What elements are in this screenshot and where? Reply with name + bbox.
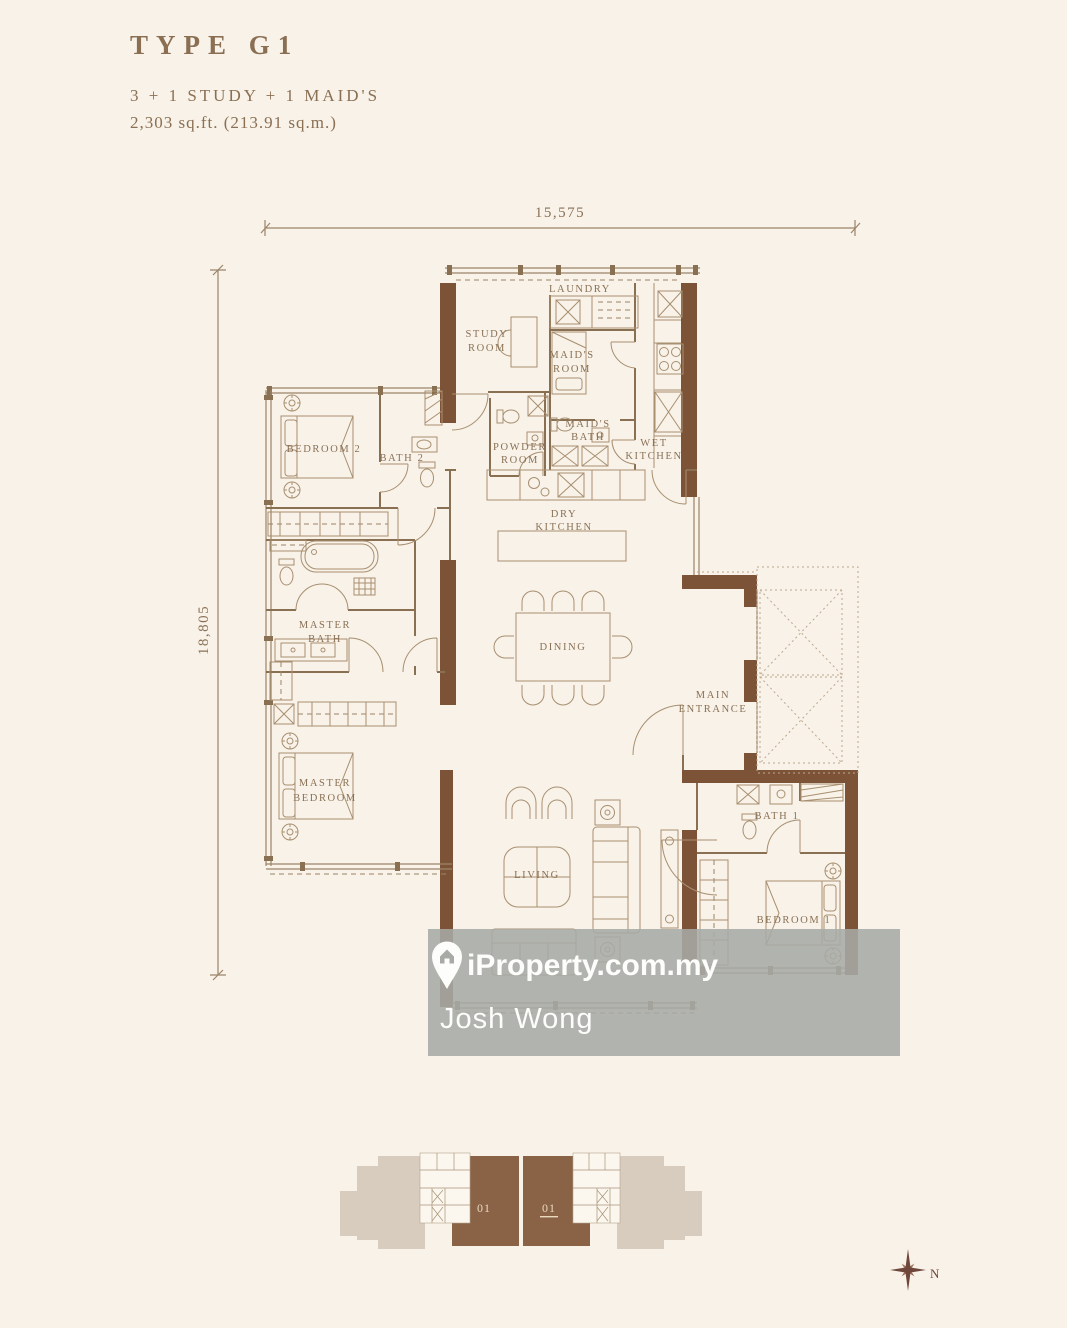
- laundry-counter: [550, 296, 638, 328]
- key-plan-left-unit-label: 01: [477, 1201, 491, 1215]
- watermark-agent: Josh Wong: [440, 1003, 594, 1035]
- tv-console: [661, 830, 678, 928]
- key-plan: 01 01: [340, 1153, 702, 1249]
- sofa-right: [593, 827, 640, 933]
- dimension-top-value: 15,575: [535, 205, 585, 221]
- label-study-2: ROOM: [468, 343, 506, 354]
- label-main-entrance-2: ENTRANCE: [679, 704, 748, 715]
- label-bath1: BATH 1: [755, 811, 800, 822]
- label-study-1: STUDY: [465, 329, 508, 340]
- wardrobe-upper: [268, 512, 388, 536]
- label-dry-kitchen-1: DRY: [551, 509, 577, 520]
- key-plan-left-wing: [340, 1156, 425, 1249]
- label-bedroom1: BEDROOM 1: [757, 915, 832, 926]
- key-plan-right-unit-label: 01: [542, 1201, 556, 1215]
- label-powder-2: ROOM: [501, 455, 539, 466]
- bed-maid: [552, 332, 586, 394]
- floor-plan-page: TYPE G1 3 + 1 STUDY + 1 MAID'S 2,303 sq.…: [0, 0, 1067, 1328]
- key-plan-right-mini: [573, 1153, 620, 1223]
- wet-kitchen-sink: [658, 291, 682, 317]
- compass: N: [890, 1249, 940, 1291]
- label-maids-bath-2: BATH: [571, 432, 605, 443]
- north-label: N: [930, 1266, 940, 1281]
- key-plan-left-mini: [420, 1153, 470, 1223]
- watermark-brand: iProperty.com.my: [467, 949, 719, 982]
- label-maids-room-1: MAID'S: [549, 350, 594, 361]
- maids-room-door: [611, 342, 635, 368]
- study-desk: [498, 317, 537, 367]
- label-maids-bath-1: MAID'S: [565, 419, 610, 430]
- label-bath2: BATH 2: [380, 453, 425, 464]
- label-dining: DINING: [540, 642, 587, 653]
- compass-rose-icon: [890, 1249, 926, 1291]
- lift-lobby: [697, 567, 858, 773]
- label-master-bath-2: BATH: [308, 634, 342, 645]
- bath1-door: [767, 820, 800, 853]
- label-dry-kitchen-2: KITCHEN: [535, 522, 592, 533]
- dimension-top: 15,575: [261, 205, 860, 236]
- fridge: [655, 392, 682, 432]
- label-laundry: LAUNDRY: [549, 284, 611, 295]
- label-master-bedroom-1: MASTER: [299, 778, 351, 789]
- exterior-walls: [264, 265, 845, 1013]
- watermark: iProperty.com.my Josh Wong: [428, 929, 900, 1056]
- powder-room-fixtures: [497, 396, 548, 445]
- dry-kitchen-counter: [487, 470, 645, 500]
- label-wet-kitchen-1: WET: [640, 438, 668, 449]
- label-wet-kitchen-2: KITCHEN: [625, 451, 682, 462]
- bath2-fixtures: [412, 391, 442, 487]
- label-master-bedroom-2: BEDROOM: [293, 793, 357, 804]
- label-powder-1: POWDER: [493, 442, 547, 453]
- wardrobes: [268, 512, 728, 965]
- dimension-left: 18,805: [196, 265, 226, 980]
- kitchen-island: [498, 531, 626, 561]
- dimension-left-value: 18,805: [196, 605, 212, 655]
- bath2-door: [380, 464, 408, 492]
- wet-kitchen-door: [652, 470, 686, 504]
- wet-kitchen-hob: [657, 344, 683, 374]
- study-corridor-door: [452, 394, 488, 430]
- label-main-entrance-1: MAIN: [696, 690, 730, 701]
- floor-plan-drawing: 15,575 18,805: [0, 0, 1067, 1328]
- label-bedroom2: BEDROOM 2: [287, 444, 362, 455]
- living-armchairs: [506, 787, 572, 819]
- main-entrance-door: [633, 705, 683, 755]
- label-master-bath-1: MASTER: [299, 620, 351, 631]
- key-plan-right-unit-underline: [540, 1216, 558, 1217]
- label-living: LIVING: [514, 870, 560, 881]
- label-maids-room-2: ROOM: [553, 364, 591, 375]
- side-table-lamp-top: [595, 800, 620, 825]
- key-plan-right-wing: [617, 1156, 702, 1249]
